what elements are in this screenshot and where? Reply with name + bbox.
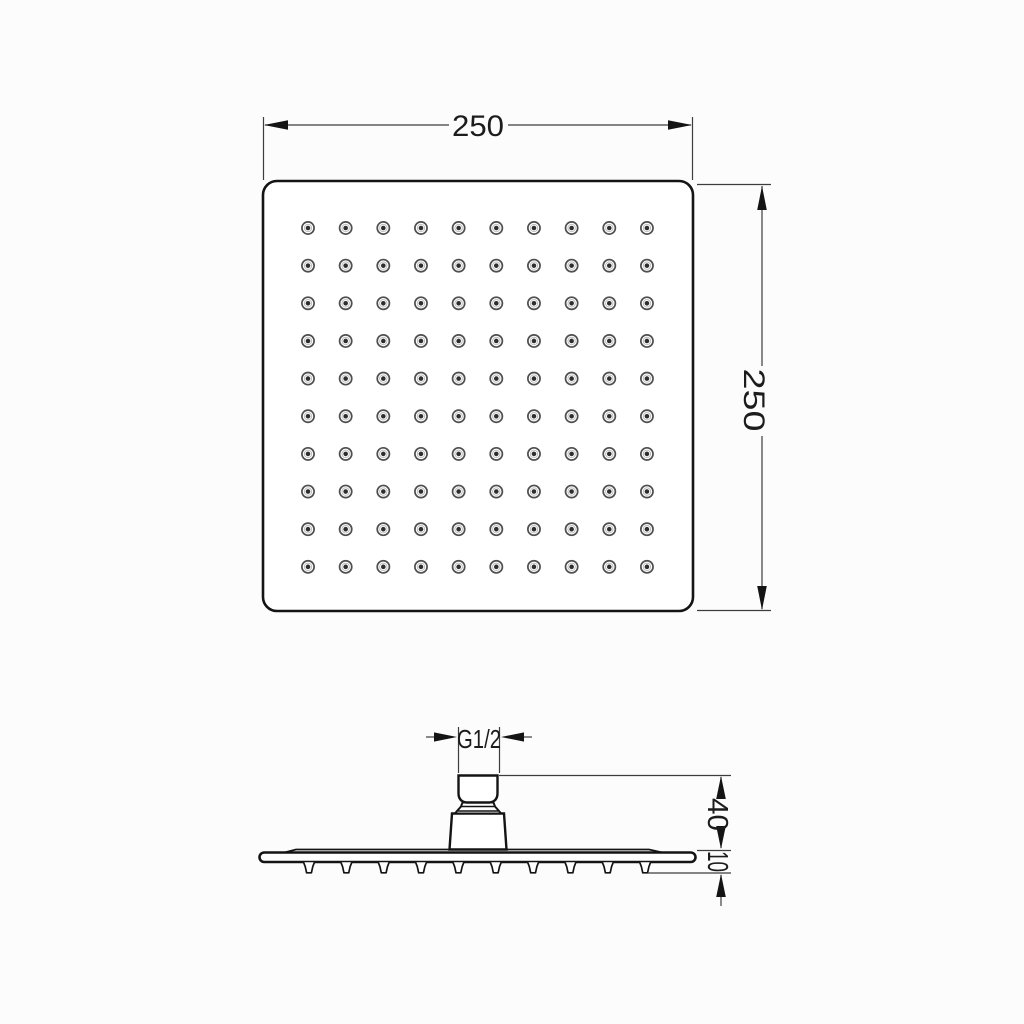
nozzle-dot <box>377 561 389 573</box>
nozzle-dot <box>302 561 314 573</box>
nozzle-dot <box>415 523 427 535</box>
nozzle-dot <box>528 222 540 234</box>
nozzle-dot <box>641 485 653 497</box>
nozzle-dot <box>490 297 502 309</box>
nozzle-dot <box>566 523 578 535</box>
arrowhead-pointing-left <box>501 732 524 741</box>
nozzle-dot <box>453 523 465 535</box>
width-dimension: 250 <box>264 110 693 180</box>
nozzle-dot <box>415 335 427 347</box>
nozzle-dot <box>603 373 615 385</box>
connector-collar <box>455 803 501 814</box>
nozzle-dot <box>340 260 352 272</box>
nozzle-dot <box>490 373 502 385</box>
nozzle-dot <box>490 260 502 272</box>
nozzle-dot <box>528 335 540 347</box>
side-view: G1/2 40 10 <box>260 724 734 906</box>
nozzle-dot <box>566 335 578 347</box>
nozzle-dot <box>302 410 314 422</box>
connector-height-label: 40 <box>701 798 733 831</box>
arrowhead-pointing-right <box>434 732 457 741</box>
arrowhead-bottom <box>757 586 767 610</box>
shower-head-technical-drawing: 250 250 <box>0 0 1024 1024</box>
nozzle-dot <box>453 260 465 272</box>
nozzle-dot <box>377 222 389 234</box>
nozzle-dot <box>566 410 578 422</box>
nozzle-dot <box>302 485 314 497</box>
side-nozzles <box>304 862 651 873</box>
nozzle-dot <box>415 222 427 234</box>
nozzle-dot <box>566 373 578 385</box>
arrowhead-up-40 <box>716 776 726 799</box>
nozzle-dot <box>377 297 389 309</box>
nozzle-dot <box>453 448 465 460</box>
nozzle-dot <box>415 410 427 422</box>
nozzle-dot <box>302 335 314 347</box>
nozzle-dot <box>566 260 578 272</box>
nozzle-dot <box>490 561 502 573</box>
height-dimensions: 40 10 <box>499 776 733 907</box>
thread-dimension-label: G1/2 <box>457 724 501 754</box>
nozzle-dot <box>641 448 653 460</box>
nozzle-dot <box>528 260 540 272</box>
drawing-canvas: 250 250 <box>0 0 1024 1024</box>
nozzle-dot <box>528 373 540 385</box>
nozzle-dot <box>453 297 465 309</box>
nozzle-dot <box>377 523 389 535</box>
width-dimension-label: 250 <box>452 110 504 143</box>
nozzle-dot <box>566 448 578 460</box>
arrowhead-up-10 <box>716 874 726 897</box>
nozzle-dot <box>566 485 578 497</box>
nozzle-dot <box>453 222 465 234</box>
nozzle-dot <box>641 373 653 385</box>
nozzle-dot <box>302 373 314 385</box>
nozzle-dot <box>528 561 540 573</box>
nozzle-dot <box>377 485 389 497</box>
top-view: 250 250 <box>263 110 771 611</box>
nozzle-dot <box>528 410 540 422</box>
nozzle-dot <box>340 373 352 385</box>
nozzle-dot <box>377 448 389 460</box>
nozzle-dot <box>340 561 352 573</box>
nozzle-dot <box>603 335 615 347</box>
shower-plate-face <box>263 181 693 611</box>
nozzle-dot <box>603 297 615 309</box>
nozzle-dot <box>603 523 615 535</box>
nozzle-dot <box>340 335 352 347</box>
nozzle-dot <box>490 485 502 497</box>
nozzle-dot <box>603 260 615 272</box>
nozzle-dot <box>340 485 352 497</box>
nozzle-dot <box>641 410 653 422</box>
nozzle-dot <box>641 561 653 573</box>
nozzle-dot <box>453 561 465 573</box>
nozzle-dot <box>528 297 540 309</box>
nozzle-dot <box>566 561 578 573</box>
nozzle-dot <box>453 485 465 497</box>
nozzle-dot <box>603 485 615 497</box>
nozzle-dot <box>377 260 389 272</box>
nozzle-dot <box>528 448 540 460</box>
nozzle-dot <box>641 260 653 272</box>
nozzle-dot <box>603 410 615 422</box>
nozzle-dot <box>302 297 314 309</box>
plate-edge-bar <box>260 853 696 863</box>
connector-base <box>450 814 507 850</box>
nozzle-dot <box>377 373 389 385</box>
thread-section <box>459 776 498 803</box>
nozzle-dot <box>302 222 314 234</box>
nozzle-dot <box>490 222 502 234</box>
nozzle-dot <box>377 410 389 422</box>
nozzle-dot <box>302 260 314 272</box>
nozzle-dot <box>415 561 427 573</box>
nozzle-dot <box>490 448 502 460</box>
nozzle-dot <box>415 260 427 272</box>
nozzle-dot <box>415 373 427 385</box>
nozzle-dot <box>490 335 502 347</box>
nozzle-dot <box>302 523 314 535</box>
nozzle-dot <box>641 335 653 347</box>
nozzle-dot <box>340 297 352 309</box>
nozzle-dot <box>528 485 540 497</box>
nozzle-dot <box>415 297 427 309</box>
nozzle-dot <box>340 523 352 535</box>
nozzle-dot <box>603 561 615 573</box>
nozzle-dot <box>453 335 465 347</box>
nozzle-dot <box>641 523 653 535</box>
nozzle-dot <box>490 410 502 422</box>
arrowhead-left <box>264 120 288 130</box>
nozzle-dot <box>340 410 352 422</box>
arrowhead-top <box>757 186 767 210</box>
nozzle-dot <box>603 222 615 234</box>
nozzle-dot <box>566 222 578 234</box>
height-dimension-label: 250 <box>737 369 770 432</box>
nozzle-dot <box>453 410 465 422</box>
nozzle-dot <box>415 485 427 497</box>
thread-dimension: G1/2 <box>426 724 532 773</box>
nozzle-dot <box>340 222 352 234</box>
nozzle-dot <box>566 297 578 309</box>
nozzle-dot <box>302 448 314 460</box>
nozzle-dot <box>377 335 389 347</box>
nozzle-dot <box>340 448 352 460</box>
plate-profile <box>260 850 696 873</box>
connector <box>450 776 507 850</box>
nozzle-dot <box>603 448 615 460</box>
nozzle-dot <box>528 523 540 535</box>
nozzle-dot <box>415 448 427 460</box>
nozzle-dot <box>641 222 653 234</box>
arrowhead-right <box>668 120 692 130</box>
nozzle-dot <box>453 373 465 385</box>
nozzle-dot <box>490 523 502 535</box>
height-dimension: 250 <box>697 185 771 611</box>
plate-thickness-label: 10 <box>701 851 733 872</box>
nozzle-dot <box>641 297 653 309</box>
